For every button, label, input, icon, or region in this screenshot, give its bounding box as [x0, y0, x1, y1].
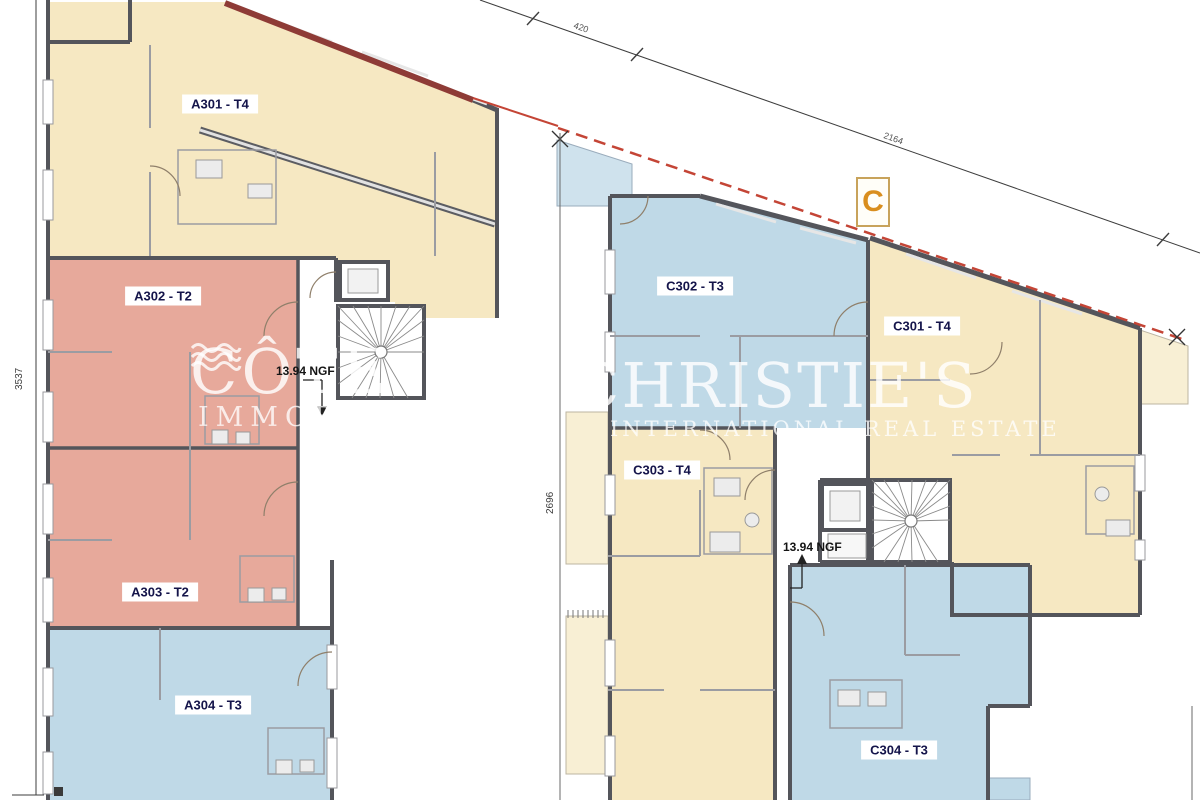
level-ngf-a: 13.94 NGF: [276, 364, 335, 378]
label-a304: A304 - T3: [175, 696, 251, 715]
dim-left-3537: 3537: [14, 368, 25, 390]
unit-c303-balcony-upper: [566, 412, 608, 564]
label-a303: A303 - T2: [122, 583, 198, 602]
label-a302: A302 - T2: [125, 287, 201, 306]
facade-marker-c: C: [856, 177, 890, 227]
unit-fills: [48, 2, 1188, 800]
floorplan-page: CÔTE IMMOBILIER CHRISTIE'S INTERNATIONAL…: [0, 0, 1200, 800]
label-c303: C303 - T4: [624, 461, 700, 480]
label-a301: A301 - T4: [182, 95, 258, 114]
stair-c: [872, 480, 950, 562]
unit-c304-balcony-tab: [988, 778, 1030, 800]
unit-c304-area: [790, 565, 1030, 800]
label-c302: C302 - T3: [657, 277, 733, 296]
dim-mid-2696: 2696: [545, 492, 556, 514]
label-c301: C301 - T4: [884, 317, 960, 336]
elevator-a: [340, 262, 388, 300]
floorplan-canvas: [0, 0, 1200, 800]
unit-c303-balcony-lower: [566, 616, 608, 774]
column-marker: [54, 787, 63, 796]
level-ngf-c: 13.94 NGF: [783, 540, 842, 554]
label-c304: C304 - T3: [861, 741, 937, 760]
stair-a: [338, 306, 424, 398]
